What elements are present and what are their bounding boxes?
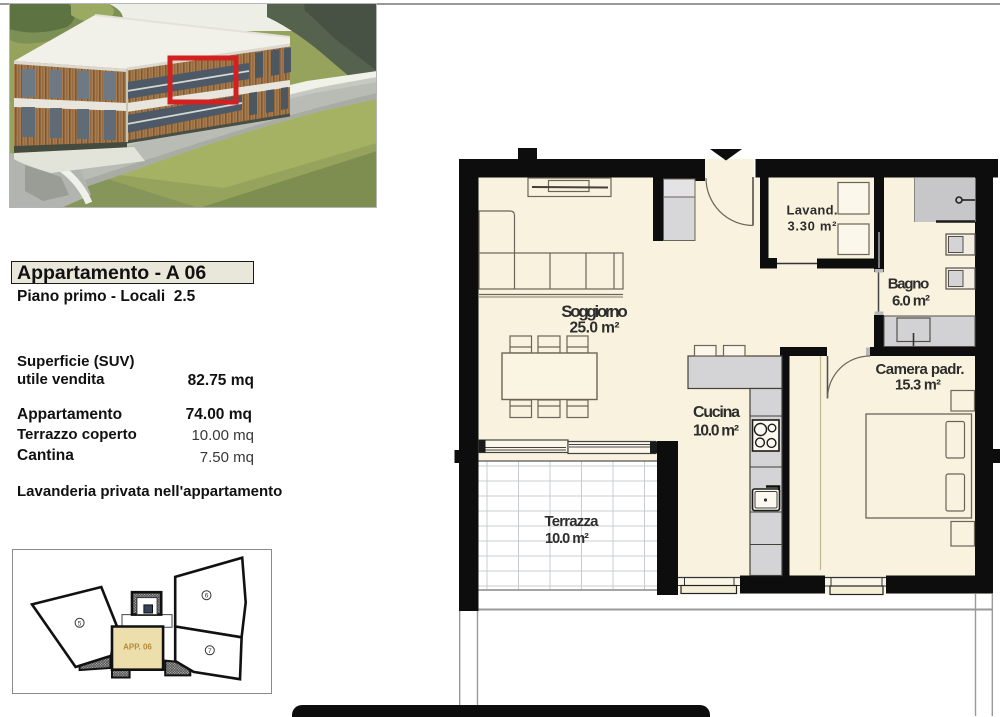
svg-text:6: 6: [205, 593, 209, 600]
svg-text:10.0 m²: 10.0 m²: [693, 423, 739, 440]
svg-text:Camera padr.: Camera padr.: [876, 361, 965, 378]
svg-text:Soggiorno: Soggiorno: [561, 302, 628, 321]
svg-text:7: 7: [208, 648, 212, 655]
svg-text:5: 5: [78, 620, 82, 627]
svg-text:Bagno: Bagno: [888, 276, 930, 293]
svg-text:Terrazza: Terrazza: [545, 513, 600, 530]
svg-text:6.0 m²: 6.0 m²: [892, 293, 930, 310]
svg-text:10.0 m²: 10.0 m²: [545, 531, 589, 547]
svg-text:25.0 m²: 25.0 m²: [570, 320, 620, 337]
svg-text:3.30 m²: 3.30 m²: [788, 219, 838, 234]
svg-text:Lavand.: Lavand.: [787, 203, 838, 218]
svg-text:15.3 m²: 15.3 m²: [895, 378, 941, 394]
svg-text:APP. 06: APP. 06: [123, 643, 152, 652]
svg-text:Cucina: Cucina: [693, 404, 740, 421]
